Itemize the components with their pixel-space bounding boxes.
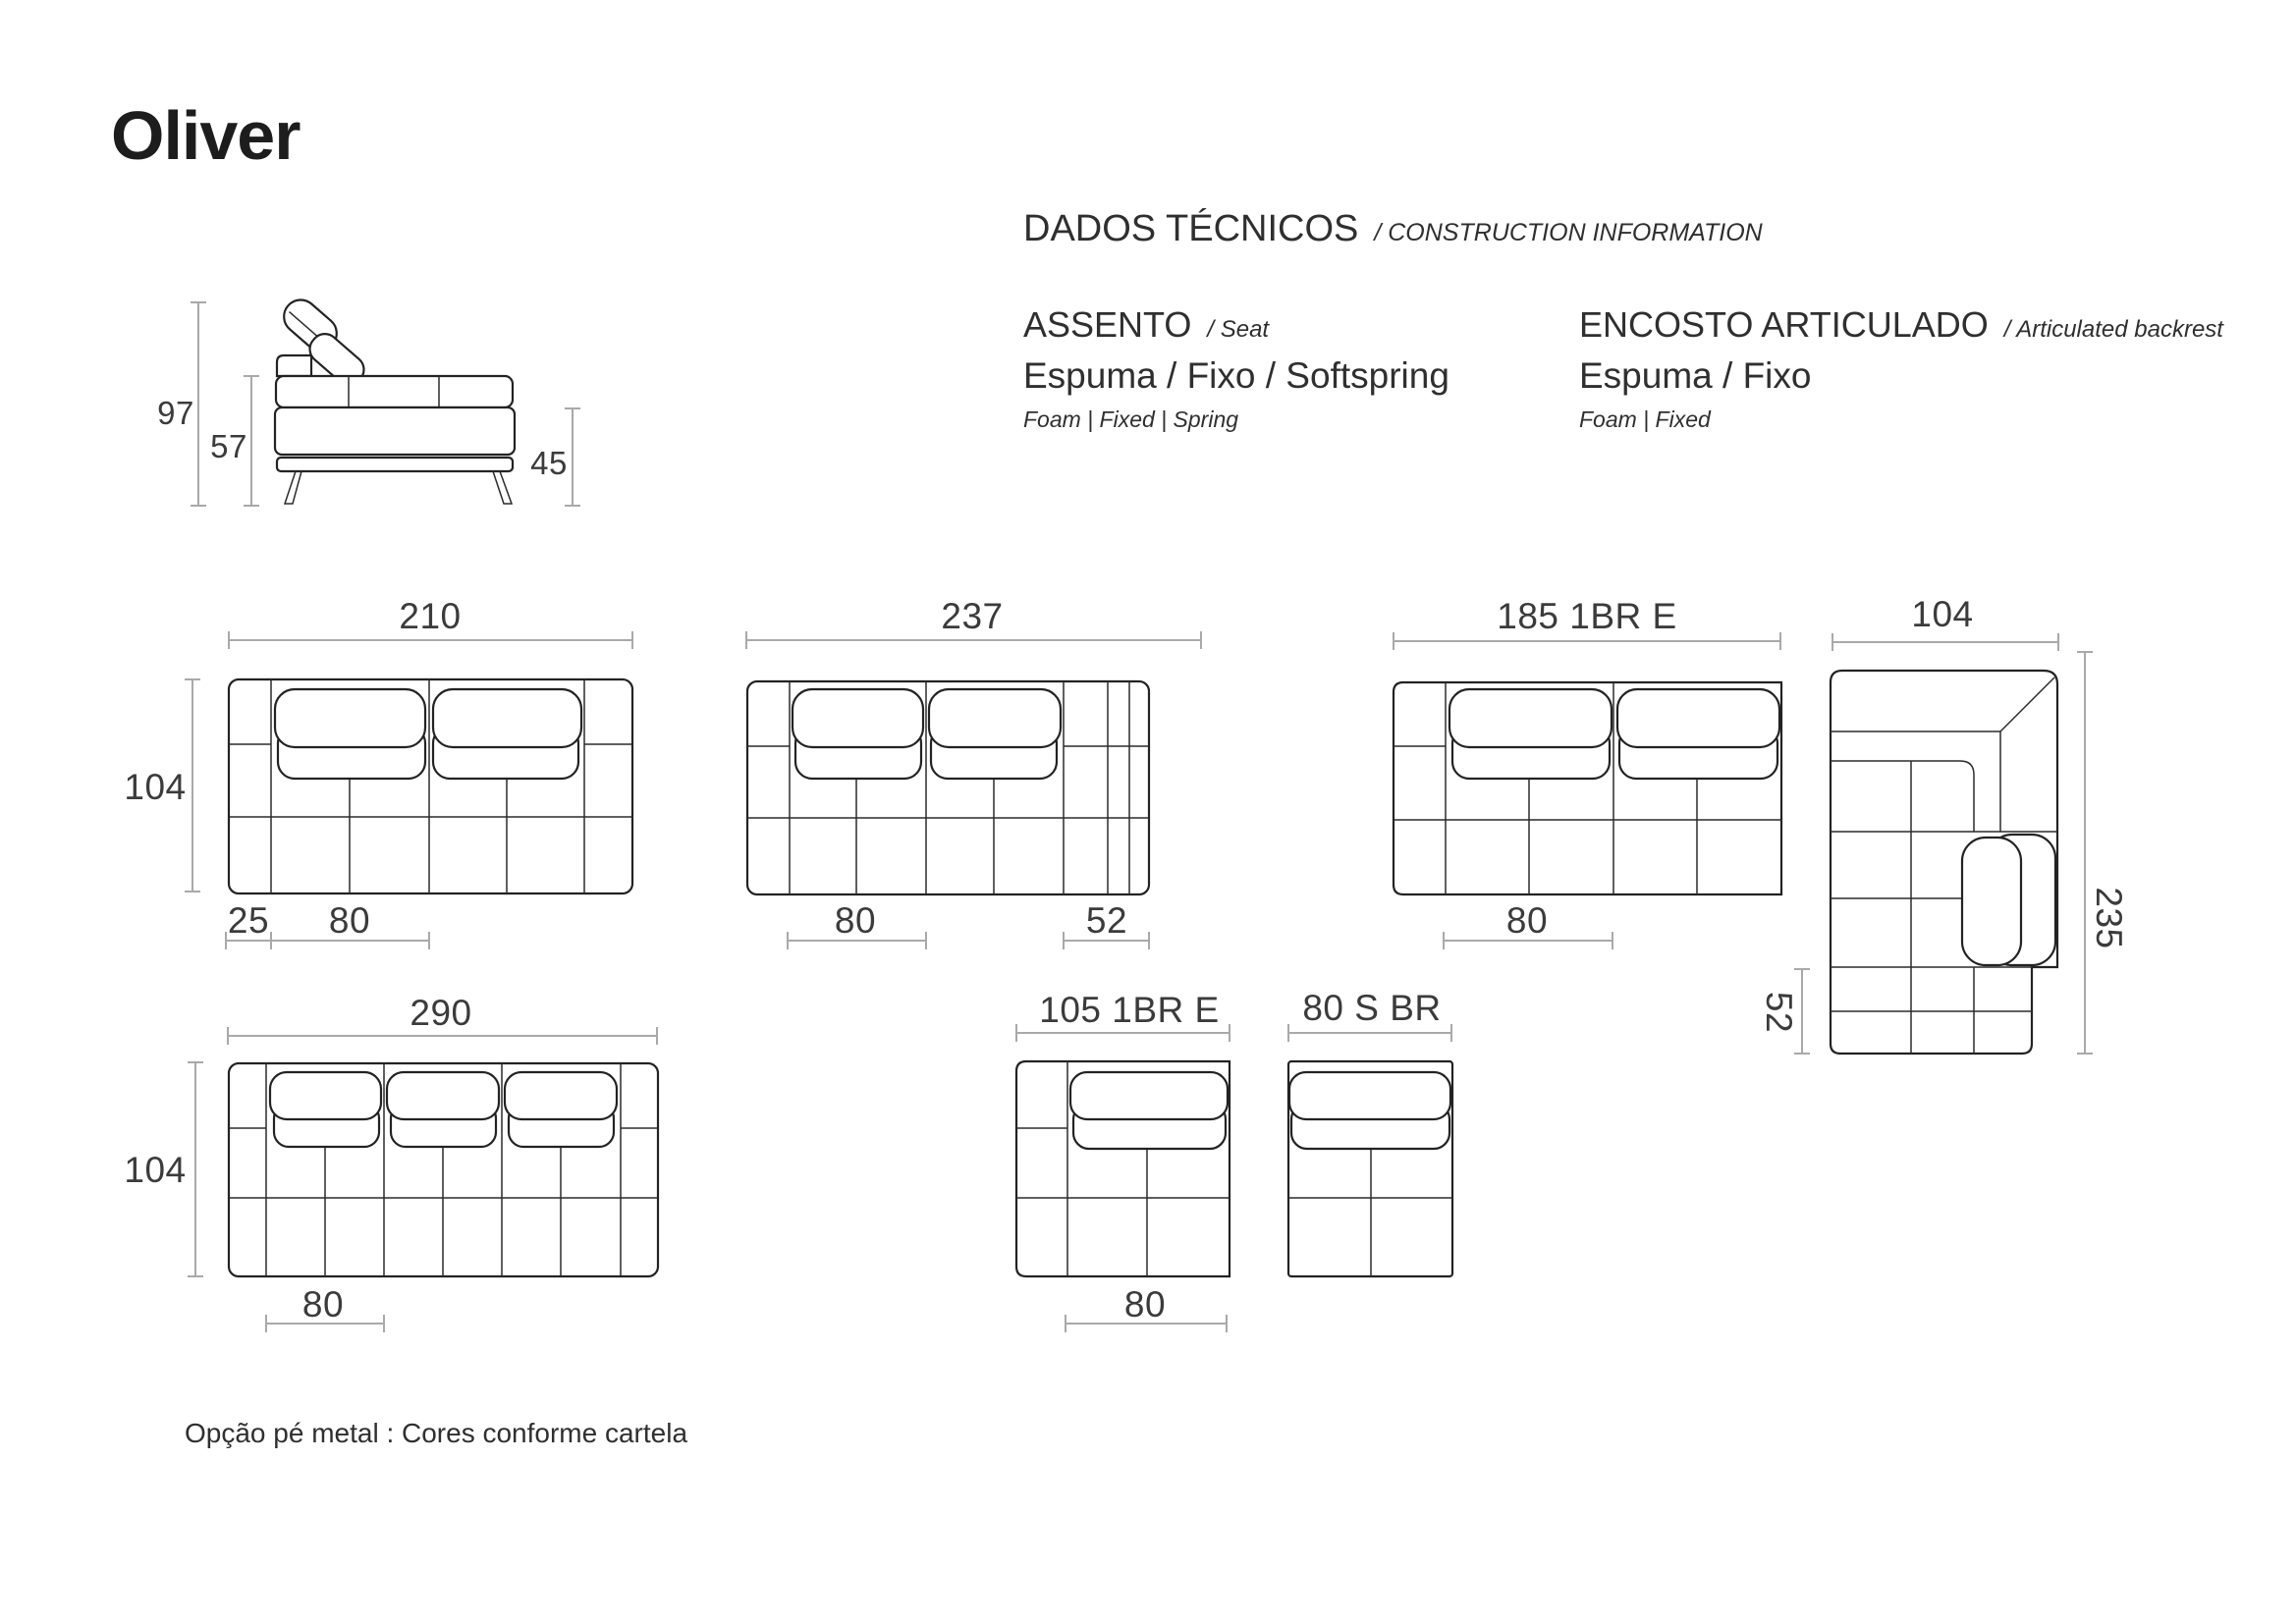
- module-290-diagram: [188, 1027, 658, 1332]
- dim-290-seat: 80: [302, 1284, 344, 1325]
- dim-back-height: 57: [210, 428, 247, 465]
- module-185-diagram: [1394, 632, 1781, 949]
- module-237-diagram: [746, 631, 1201, 949]
- dim-237-seat: 80: [835, 900, 876, 942]
- seat-section-title: ASSENTO / Seat: [1023, 304, 1269, 346]
- dim-237-end: 52: [1086, 900, 1127, 942]
- seat-spec-en: Foam | Fixed | Spring: [1023, 406, 1238, 433]
- tech-info-heading-pt: DADOS TÉCNICOS: [1023, 208, 1358, 250]
- spec-sheet-page: Oliver DADOS TÉCNICOS / CONSTRUCTION INF…: [0, 0, 2296, 1623]
- backrest-title-pt: ENCOSTO ARTICULADO: [1579, 304, 1989, 346]
- backrest-spec-pt: Espuma / Fixo: [1579, 355, 1811, 397]
- dim-290-width: 290: [410, 993, 471, 1034]
- dim-237-width: 237: [941, 596, 1003, 637]
- dim-80-width: 80 S BR: [1302, 988, 1441, 1029]
- dim-185-seat: 80: [1506, 900, 1548, 942]
- backrest-spec-en: Foam | Fixed: [1579, 406, 1711, 433]
- seat-title-en: / Seat: [1207, 316, 1269, 344]
- dim-290-depth: 104: [124, 1150, 186, 1191]
- backrest-title-en: / Articulated backrest: [2004, 316, 2223, 344]
- dim-corner-strip: 52: [1758, 992, 1799, 1033]
- rear-leg: [493, 471, 512, 504]
- seat-title-pt: ASSENTO: [1023, 304, 1191, 346]
- dim-210-seat: 80: [329, 900, 370, 942]
- dim-total-height: 97: [157, 395, 194, 432]
- tech-info-heading: DADOS TÉCNICOS / CONSTRUCTION INFORMATIO…: [1023, 208, 1763, 250]
- module-80-diagram: [1288, 1024, 1452, 1276]
- tech-info-heading-en: / CONSTRUCTION INFORMATION: [1374, 219, 1762, 247]
- module-105-diagram: [1016, 1024, 1230, 1332]
- dim-105-width: 105 1BR E: [1039, 990, 1219, 1031]
- module-corner-diagram: [1794, 633, 2093, 1054]
- dim-210-width: 210: [399, 596, 461, 637]
- dim-185-width: 185 1BR E: [1497, 596, 1676, 637]
- dim-corner-length: 235: [2088, 887, 2129, 948]
- front-leg: [285, 471, 301, 504]
- dim-corner-width: 104: [1911, 594, 1973, 635]
- dim-105-seat: 80: [1124, 1284, 1166, 1325]
- footnote: Opção pé metal : Cores conforme cartela: [185, 1418, 687, 1449]
- dim-210-depth: 104: [124, 767, 186, 808]
- side-view-diagram: [191, 293, 580, 506]
- dim-seat-height: 45: [530, 445, 568, 482]
- dim-210-arm: 25: [228, 900, 269, 942]
- seat-spec-pt: Espuma / Fixo / Softspring: [1023, 355, 1449, 397]
- side-view-sofa: [275, 293, 515, 504]
- page-title: Oliver: [111, 96, 300, 175]
- backrest-section-title: ENCOSTO ARTICULADO / Articulated backres…: [1579, 304, 2223, 346]
